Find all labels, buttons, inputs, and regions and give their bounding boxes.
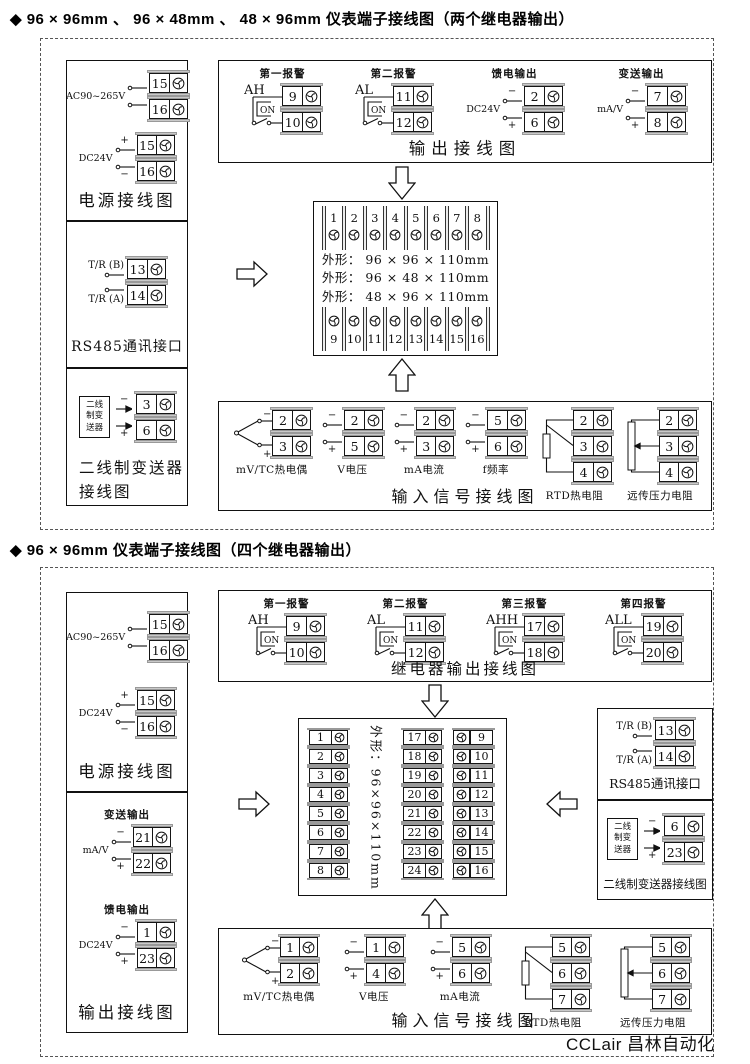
- terminal-cells: 2: [416, 410, 455, 430]
- terminal: 2: [573, 407, 612, 433]
- caption-line: 二线制变送器: [79, 456, 184, 480]
- terminal: 21: [403, 804, 442, 823]
- terminal-screw: [369, 226, 381, 245]
- terminal-cap: [414, 456, 457, 459]
- screw-icon: [334, 751, 345, 762]
- terminal-screw: [328, 312, 340, 331]
- terminal-screw: [435, 410, 454, 430]
- terminal-number: 2: [416, 410, 437, 430]
- group-title: 第三报警: [501, 596, 547, 611]
- terminal-screw: [364, 436, 383, 456]
- terminal: 3: [272, 433, 311, 459]
- terminal-cells: 6: [552, 963, 591, 983]
- terminal-cells: 2: [659, 410, 698, 430]
- terminal-cells: 19: [403, 768, 442, 783]
- terminal: 10: [282, 109, 321, 135]
- svg-text:ON: ON: [371, 106, 386, 116]
- terminal: 8: [647, 109, 686, 135]
- terminal-stack: 56: [452, 934, 491, 986]
- terminal-number: 11: [405, 616, 426, 636]
- terminal-screw: [302, 86, 321, 106]
- terminal-screw: [671, 963, 690, 983]
- terminal-screw: [410, 226, 422, 245]
- screw-icon: [456, 789, 467, 800]
- group-row: −+56: [465, 407, 526, 459]
- signal-group: 馈电输出DC24V−+123: [79, 902, 176, 971]
- screw-icon: [416, 90, 429, 103]
- terminal-screw: [292, 410, 311, 430]
- terminal-cells: 23: [137, 948, 176, 968]
- screw-icon: [416, 116, 429, 129]
- svg-text:AH: AH: [244, 83, 265, 98]
- terminal-number: 21: [403, 806, 426, 821]
- terminal-cells: 1: [280, 937, 319, 957]
- terminal-screw: [430, 312, 442, 331]
- s2-output-left-box: 变送输出mA/V−+2122馈电输出DC24V−+123 输出接线图: [66, 792, 188, 1033]
- terminal-screw: [156, 135, 175, 155]
- screw-icon: [510, 414, 523, 427]
- s1-rs485-wiring: T/R (B)T/R (A)1314: [88, 222, 166, 308]
- terminal: 14: [428, 310, 445, 348]
- screw-icon: [430, 229, 442, 241]
- terminal-stack: 1516: [149, 70, 188, 122]
- terminal-cap: [147, 119, 190, 122]
- polarity-sign: −: [394, 412, 414, 421]
- wire-lead: +: [625, 114, 645, 131]
- terminal: 12: [393, 109, 432, 135]
- terminal-stack: 567: [552, 934, 591, 1012]
- terminal-screw: [306, 616, 325, 636]
- terminal-screw: [453, 787, 470, 802]
- screw-icon: [456, 751, 467, 762]
- s1-transmitter-wiring: 二线制变送器−+36: [79, 369, 175, 443]
- screw-icon: [670, 90, 683, 103]
- terminal-screw: [413, 86, 432, 106]
- terminal-strip: 910111213141516: [322, 310, 490, 348]
- shape-line: 外形： 96 × 48 × 110mm: [322, 269, 489, 287]
- wire-column: −+: [625, 83, 645, 135]
- terminal: 9: [286, 613, 325, 639]
- wire-lead: [127, 75, 147, 92]
- wire-lead: [127, 616, 147, 633]
- terminal-number: 13: [408, 332, 423, 346]
- group-row: AHON910: [244, 83, 321, 135]
- s2-power-groups: AC90~265V1516DC24V+−1516: [67, 593, 187, 739]
- terminal: 13: [127, 256, 166, 282]
- screw-icon: [428, 865, 439, 876]
- s1-output-groups: 第一报警AHON910第二报警ALON1112馈电输出DC24V−+26变送输出…: [219, 61, 711, 135]
- terminal-cap: [653, 766, 696, 769]
- screw-icon: [159, 424, 172, 437]
- screw-icon: [428, 808, 439, 819]
- svg-text:−: −: [271, 936, 279, 947]
- terminal: 15: [454, 842, 493, 861]
- wire-column: −+: [394, 407, 414, 459]
- terminal: 3: [416, 433, 455, 459]
- terminal-screw: [425, 787, 442, 802]
- terminal-screw: [331, 787, 348, 802]
- group-label: mA/V: [83, 845, 109, 856]
- s2-rs485-wiring: T/R (B)T/R (A)1314: [616, 709, 694, 769]
- rs485-labels: T/R (B)T/R (A): [616, 717, 655, 769]
- terminal-number: 6: [652, 963, 673, 983]
- polarity-sign: [127, 616, 147, 625]
- terminal: 15: [137, 687, 176, 713]
- terminal-cells: 19: [643, 616, 682, 636]
- screw-icon: [369, 315, 381, 327]
- terminal-screw: [678, 462, 697, 482]
- terminal-cap: [125, 305, 168, 308]
- group-row: 567: [516, 934, 591, 1012]
- wire-lead: −: [642, 818, 662, 835]
- terminal: 1: [280, 934, 319, 960]
- wire-icon: [632, 732, 652, 740]
- terminal-number: 10: [282, 112, 303, 132]
- wire-icon: [344, 948, 364, 956]
- terminal-stack: 623: [664, 813, 703, 865]
- device-label-line: 送器: [86, 423, 103, 434]
- group-title: 馈电输出: [104, 902, 150, 917]
- terminal-stack: 1314: [127, 256, 166, 308]
- caption-line: 接线图: [79, 480, 184, 504]
- terminal-screw: [425, 844, 442, 859]
- polarity-sign: −: [111, 829, 131, 838]
- terminal-cells: 18: [403, 749, 442, 764]
- terminal-cap: [135, 968, 178, 971]
- shape-line: 外形： 48 × 96 × 110mm: [322, 288, 489, 306]
- terminal-number: 19: [643, 616, 664, 636]
- group-label: DC24V: [79, 940, 113, 951]
- terminal-screw: [364, 410, 383, 430]
- terminal-screw: [425, 806, 442, 821]
- terminal-number: 5: [412, 211, 419, 225]
- terminal-stack: 234: [573, 407, 612, 485]
- screw-icon: [428, 789, 439, 800]
- screw-icon: [348, 315, 360, 327]
- rs485-labels: T/R (B)T/R (A): [88, 256, 127, 308]
- s2-relay-caption: 继电器输出接线图: [219, 657, 711, 679]
- screw-icon: [159, 694, 172, 707]
- terminal-stack: 23: [272, 407, 311, 459]
- signal-group: 馈电输出DC24V−+26: [466, 66, 563, 135]
- terminal: 4: [573, 459, 612, 485]
- terminal: 2: [346, 209, 363, 247]
- terminal: 5: [487, 407, 526, 433]
- relay-alarm-group: 第二报警ALON1112: [367, 596, 444, 665]
- terminal-number: 4: [659, 462, 680, 482]
- terminal-stack: 1314: [655, 717, 694, 769]
- terminal-cells: 8: [309, 863, 348, 878]
- terminal: 18: [403, 747, 442, 766]
- terminal-cells: 6: [652, 963, 691, 983]
- screw-icon: [159, 165, 172, 178]
- s1-power-wiring-box: AC90~265V1516DC24V+−1516 电源接线图: [66, 60, 188, 221]
- wire-column: [127, 70, 147, 122]
- terminal: 9: [282, 83, 321, 109]
- terminal-number: 15: [470, 844, 493, 859]
- terminal: 17: [524, 613, 563, 639]
- screw-icon: [456, 732, 467, 743]
- polarity-sign: +: [344, 973, 364, 982]
- terminal-stack: 910: [282, 83, 321, 135]
- terminal-screw: [671, 937, 690, 957]
- screw-icon: [438, 440, 451, 453]
- terminal-number: 8: [474, 211, 481, 225]
- s2-relay-groups: 第一报警AHON910第二报警ALON1112第三报警AHHON1718第四报警…: [219, 591, 711, 665]
- polarity-sign: +: [115, 137, 135, 146]
- terminal: 7: [449, 209, 466, 247]
- terminal-screw: [453, 825, 470, 840]
- wire-lead: −: [502, 88, 522, 105]
- terminal-cells: 16: [454, 863, 493, 878]
- terminal-screw: [544, 86, 563, 106]
- terminal-cells: 4: [659, 462, 698, 482]
- terminal-screw: [453, 806, 470, 821]
- terminal-cells: 17: [403, 730, 442, 745]
- two-wire-transmitter-wiring: 二线制变送器−+36: [79, 391, 175, 443]
- polarity-sign: [127, 650, 147, 659]
- terminal-screw: [453, 844, 470, 859]
- terminal: 4: [366, 960, 405, 986]
- terminal-cells: 16: [137, 716, 176, 736]
- thermocouple-group: −+12mV/TC热电偶: [240, 934, 319, 1004]
- terminal: 6: [524, 109, 563, 135]
- terminal: 23: [403, 842, 442, 861]
- terminal-screw: [331, 730, 348, 745]
- screw-icon: [678, 724, 691, 737]
- s1-input-caption: 输入信号接线图: [219, 483, 711, 507]
- terminal-cells: 9: [282, 86, 321, 106]
- terminal-number: 6: [433, 211, 440, 225]
- terminal-number: 14: [655, 746, 676, 766]
- polarity-sign: −: [625, 88, 645, 97]
- wire-icon: [127, 101, 147, 109]
- shape-dimensions-vertical: 外形：96×96×110mm: [368, 725, 387, 891]
- potentiometer-symbol: [616, 934, 652, 1012]
- group-label: mA电流: [404, 462, 445, 477]
- terminal-cap: [450, 983, 493, 986]
- screw-icon: [428, 770, 439, 781]
- terminal-cap: [401, 878, 444, 880]
- terminal-number: 2: [659, 410, 680, 430]
- terminal-cells: 2: [272, 410, 311, 430]
- terminal-number: 3: [309, 768, 332, 783]
- terminal-screw: [410, 312, 422, 331]
- screw-icon: [172, 644, 185, 657]
- terminal: 24: [403, 861, 442, 880]
- terminal-cells: 3: [659, 436, 698, 456]
- terminal-screw: [667, 112, 686, 132]
- two-wire-transmitter-wiring: 二线制变送器−+623: [607, 813, 703, 865]
- block-arrow-up-icon: [388, 358, 416, 392]
- s2-rs485-caption: RS485通讯接口: [609, 773, 701, 792]
- terminal: 1: [366, 934, 405, 960]
- terminal-screw: [292, 436, 311, 456]
- thermocouple-symbol: −+: [240, 934, 280, 986]
- section1-title: ◆ 96 × 96mm 、 96 × 48mm 、 48 × 96mm 仪表端子…: [10, 8, 574, 29]
- terminal-number: 18: [403, 749, 426, 764]
- screw-icon: [155, 831, 168, 844]
- s1-terminal-block: 12345678 外形： 96 × 96 × 110mm 外形： 96 × 48…: [313, 201, 498, 356]
- terminal: 7: [647, 83, 686, 109]
- screw-icon: [547, 116, 560, 129]
- screw-icon: [334, 827, 345, 838]
- terminal: 16: [454, 861, 493, 880]
- s1-power-caption: 电源接线图: [78, 187, 176, 211]
- terminal-number: 11: [470, 768, 493, 783]
- terminal-screw: [299, 963, 318, 983]
- s2-output-left-caption: 输出接线图: [78, 999, 176, 1023]
- wire-column: +−: [115, 687, 135, 739]
- terminal-screw: [299, 937, 318, 957]
- screw-icon: [681, 466, 694, 479]
- terminal: 3: [309, 766, 348, 785]
- screw-icon: [456, 827, 467, 838]
- block-arrow-right-icon: [238, 790, 270, 818]
- terminal-number: 15: [137, 135, 158, 155]
- screw-icon: [674, 993, 687, 1006]
- block-arrow-left-icon: [546, 790, 578, 818]
- wire-column: [127, 611, 147, 663]
- terminal-screw: [331, 749, 348, 764]
- terminal-screw: [425, 749, 442, 764]
- terminal-cells: 9: [454, 730, 493, 745]
- terminal-cells: 23: [403, 844, 442, 859]
- screw-icon: [456, 770, 467, 781]
- polarity-sign: +: [111, 863, 131, 872]
- screw-icon: [334, 732, 345, 743]
- terminal: 21: [133, 824, 172, 850]
- arrow-right-small-icon: [116, 405, 132, 413]
- screw-icon: [674, 967, 687, 980]
- terminal-rail: [486, 206, 490, 250]
- terminal-screw: [369, 312, 381, 331]
- terminal: 8: [309, 861, 348, 880]
- screw-icon: [451, 315, 463, 327]
- group-title: 第二报警: [382, 596, 428, 611]
- screw-icon: [334, 789, 345, 800]
- terminal-screw: [684, 842, 703, 862]
- terminal-cap: [307, 878, 350, 880]
- screw-icon: [328, 315, 340, 327]
- terminal-cells: 24: [403, 863, 442, 878]
- terminal-cap: [278, 983, 321, 986]
- terminal-screw: [678, 410, 697, 430]
- terminal-cells: 2: [280, 963, 319, 983]
- wire-lead: [127, 642, 147, 659]
- group-title: 第一报警: [260, 66, 306, 81]
- wire-lead: +: [115, 950, 135, 967]
- terminal: 6: [428, 209, 445, 247]
- terminal-screw: [675, 720, 694, 740]
- terminal-cells: 1: [366, 937, 405, 957]
- terminal-cells: 2: [524, 86, 563, 106]
- screw-icon: [334, 865, 345, 876]
- screw-icon: [596, 466, 609, 479]
- terminal-cells: 3: [416, 436, 455, 456]
- terminal-cap: [342, 456, 385, 459]
- terminal-cap: [485, 456, 528, 459]
- signal-group: AC90~265V1516: [66, 70, 188, 122]
- terminal-screw: [453, 749, 470, 764]
- terminal: 5: [552, 934, 591, 960]
- group-row: 234: [537, 407, 612, 485]
- terminal: 11: [405, 613, 444, 639]
- wire-column: −+: [430, 934, 450, 986]
- wire-lead: −: [465, 412, 485, 429]
- terminal-cells: 21: [133, 827, 172, 847]
- terminal-cells: 3: [136, 394, 175, 414]
- terminal-stack: 1516: [149, 611, 188, 663]
- wire-lead: −: [114, 396, 134, 413]
- terminal-cells: 16: [149, 99, 188, 119]
- terminal-screw: [593, 462, 612, 482]
- rtd-symbol: [516, 934, 552, 1012]
- terminal-screw: [147, 259, 166, 279]
- signal-group: −+23mA电流: [394, 407, 455, 477]
- terminal-column-left: 12345678: [309, 728, 348, 880]
- terminal-screw: [425, 825, 442, 840]
- terminal-cells: 15: [454, 844, 493, 859]
- screw-icon: [150, 289, 163, 302]
- terminal-number: 1: [330, 211, 337, 225]
- group-row: −+23: [394, 407, 455, 459]
- screw-icon: [596, 440, 609, 453]
- terminal-number: 10: [347, 332, 362, 346]
- terminal-number: 15: [149, 614, 170, 634]
- terminal: 13: [408, 310, 425, 348]
- terminal: 3: [573, 433, 612, 459]
- screw-icon: [305, 116, 318, 129]
- block-arrow-up-icon: [421, 898, 449, 932]
- terminal-screw: [471, 937, 490, 957]
- terminal-cells: 3: [272, 436, 311, 456]
- alarm-switch-symbol: ALON: [355, 83, 393, 135]
- screw-icon: [295, 414, 308, 427]
- s2-power-caption: 电源接线图: [78, 758, 176, 782]
- block-arrow-down-icon: [388, 166, 416, 200]
- terminal: 14: [655, 743, 694, 769]
- s1-output-caption: 输出接线图: [219, 135, 711, 159]
- terminal-screw: [413, 112, 432, 132]
- wire-lead: −: [115, 924, 135, 941]
- group-title: 变送输出: [104, 807, 150, 822]
- terminal-cells: 4: [309, 787, 348, 802]
- terminal-number: 2: [309, 749, 332, 764]
- block-arrow-down-icon: [421, 684, 449, 718]
- block-arrow-right-icon: [236, 260, 268, 288]
- terminal-column-right: 910111213141516: [454, 728, 493, 880]
- terminal-stack: 1516: [137, 687, 176, 739]
- wire-icon: [104, 271, 124, 279]
- terminal-cells: 2: [309, 749, 348, 764]
- device-label-line: 二线: [86, 400, 103, 411]
- wire-column: +−: [115, 132, 135, 184]
- terminal-cells: 3: [309, 768, 348, 783]
- thermocouple-symbol: −+: [232, 407, 272, 459]
- svg-text:AHH: AHH: [486, 613, 518, 628]
- screw-icon: [547, 620, 560, 633]
- terminal: 5: [309, 804, 348, 823]
- terminal-number: 5: [652, 937, 673, 957]
- terminal-cells: 6: [487, 436, 526, 456]
- s2-transmitter-box: 二线制变送器−+623 二线制变送器接线图: [597, 800, 713, 900]
- wire-icon: [625, 97, 645, 105]
- terminal-number: 7: [453, 211, 460, 225]
- terminal-cap: [147, 660, 190, 663]
- group-row: mA/V−+2122: [83, 824, 172, 876]
- terminal-cells: 6: [664, 816, 703, 836]
